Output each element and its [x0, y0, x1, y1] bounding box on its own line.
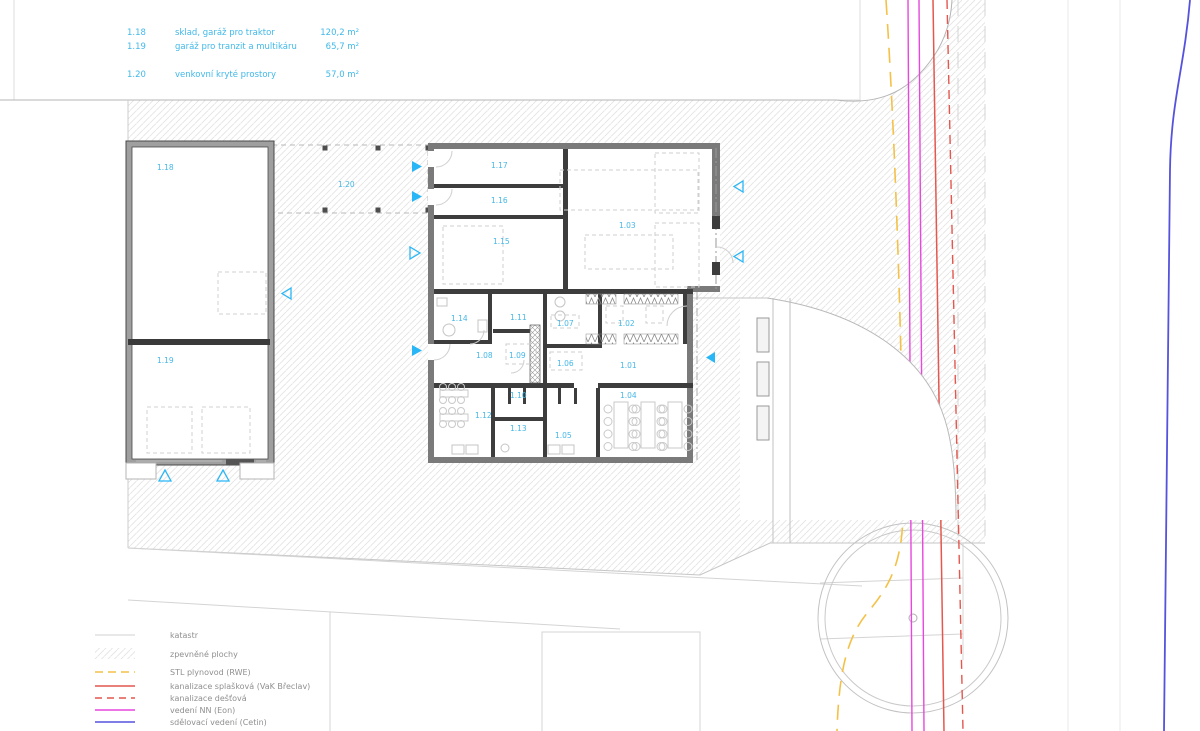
- area-row-area: 57,0 m²: [326, 70, 359, 80]
- room-label-1-06: 1.06: [557, 359, 574, 368]
- garage-building: [126, 141, 274, 479]
- site-plan-page: 1.18 1.19 1.20 1.17 1.16 1.15 1.03 1.14 …: [0, 0, 1200, 731]
- legend-label: zpevněné plochy: [170, 649, 238, 659]
- room-label-1-01: 1.01: [620, 361, 637, 370]
- area-row-name: venkovní kryté prostory: [175, 69, 276, 80]
- room-label-1-11: 1.11: [510, 313, 527, 322]
- room-label-1-14: 1.14: [451, 314, 468, 323]
- area-row-id: 1.20: [127, 70, 146, 80]
- room-label-1-05: 1.05: [555, 431, 572, 440]
- room-label-1-09: 1.09: [509, 351, 526, 360]
- room-label-1-07: 1.07: [557, 319, 574, 328]
- shaft-crosshatch: [530, 325, 540, 383]
- area-row-name: garáž pro tranzit a multikáru: [175, 42, 297, 52]
- room-label-1-08: 1.08: [476, 351, 493, 360]
- room-label-1-19: 1.19: [157, 356, 174, 365]
- room-label-1-20: 1.20: [338, 180, 355, 189]
- area-row-area: 120,2 m²: [320, 28, 359, 38]
- room-label-1-17: 1.17: [491, 161, 508, 170]
- site-plan-drawing: 1.18 1.19 1.20 1.17 1.16 1.15 1.03 1.14 …: [0, 0, 1200, 731]
- legend-label: kanalizace dešťová: [170, 693, 247, 703]
- room-label-1-02: 1.02: [618, 319, 635, 328]
- main-building: [428, 143, 733, 463]
- room-label-1-10: 1.10: [510, 391, 527, 400]
- area-row-name: sklad, garáž pro traktor: [175, 28, 275, 38]
- legend-label: kanalizace splašková (VaK Břeclav): [170, 681, 310, 691]
- room-label-1-13: 1.13: [510, 424, 527, 433]
- legend-label: STL plynovod (RWE): [170, 668, 251, 677]
- legend-label: vedení NN (Eon): [170, 706, 235, 715]
- area-row-area: 65,7 m²: [326, 42, 359, 52]
- room-label-1-15: 1.15: [493, 237, 510, 246]
- legend-swatch-hatch: [95, 648, 135, 659]
- legend-label: katastr: [170, 631, 199, 640]
- room-label-1-12: 1.12: [475, 411, 492, 420]
- room-label-1-18: 1.18: [157, 163, 174, 172]
- area-row-id: 1.18: [127, 28, 146, 38]
- legend-label: sdělovací vedení (Cetin): [170, 718, 267, 727]
- room-label-1-16: 1.16: [491, 196, 508, 205]
- area-row-id: 1.19: [127, 42, 146, 52]
- room-label-1-03: 1.03: [619, 221, 636, 230]
- room-label-1-04: 1.04: [620, 391, 637, 400]
